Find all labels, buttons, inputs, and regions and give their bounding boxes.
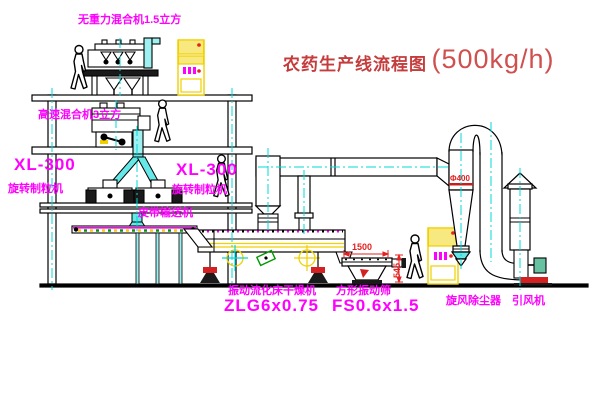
dryer-detail-green-box (257, 251, 275, 266)
fan-label: 引风机 (512, 296, 545, 307)
worker-figure (407, 235, 423, 279)
cabinet-indicator-light (449, 254, 453, 258)
second-mixer-label: 高速混合机3立方 (38, 110, 121, 121)
screen-model-label: FS0.6x1.5 (332, 297, 419, 314)
process-flow-diagram: 农药生产线流程图 (500kg/h) 无重力混合机1.5立方 高速混合机3立方 … (0, 0, 600, 403)
title-capacity: (500kg/h) (431, 44, 554, 74)
granulator-left-name-label: 旋转制粒机 (8, 184, 63, 195)
granulator-right-name-label: 旋转制粒机 (172, 185, 227, 196)
top-mixer-label: 无重力混合机1.5立方 (78, 15, 181, 26)
control-cabinet-right (428, 228, 458, 284)
cabinet-indicator-light (197, 43, 201, 47)
floor-slab-1 (32, 95, 252, 101)
top-mixer-drawing (82, 38, 160, 95)
drawing-title: 农药生产线流程图 (500kg/h) (283, 50, 555, 81)
cabinet-indicator-light (197, 69, 201, 73)
screen-height-dimension: 545 (393, 263, 402, 278)
title-text: 农药生产线流程图 (283, 55, 427, 74)
exhaust-duct (256, 156, 449, 218)
granulator-left-model-label: XL-300 (14, 156, 76, 173)
dryer-model-label: ZLG6x0.75 (224, 297, 319, 314)
worker-figure (71, 46, 87, 90)
cabinet-indicator-light (451, 231, 455, 235)
cyclone-label: 旋风除尘器 (446, 296, 501, 307)
screen-length-dimension: 1500 (352, 243, 372, 252)
control-cabinet-top (178, 40, 204, 95)
cyclone-inlet-transition (437, 158, 449, 186)
spring-mount (200, 252, 328, 283)
worker-figure (155, 100, 170, 142)
cyclone-marking: Φ400 (450, 175, 470, 183)
granulator-right-model-label: XL-300 (176, 161, 238, 178)
granulator-left-drawing (86, 180, 134, 203)
belt-conveyor-label: 皮带输送机 (138, 208, 193, 219)
belt-conveyor-drawing (72, 226, 197, 284)
